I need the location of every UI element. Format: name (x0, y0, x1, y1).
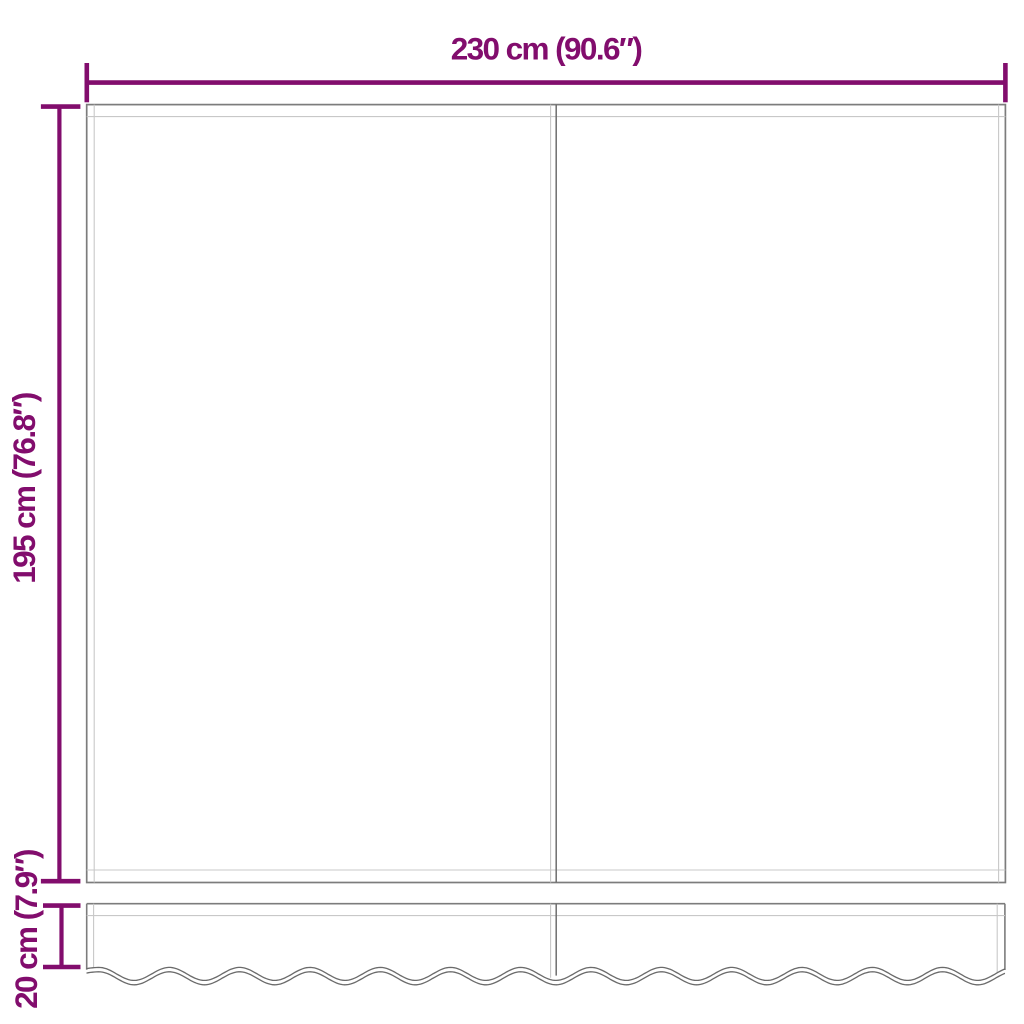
svg-text:230 cm (90.6″): 230 cm (90.6″) (451, 31, 642, 67)
svg-text:195 cm (76.8″): 195 cm (76.8″) (6, 393, 42, 584)
svg-text:20 cm (7.9″): 20 cm (7.9″) (8, 850, 44, 1009)
